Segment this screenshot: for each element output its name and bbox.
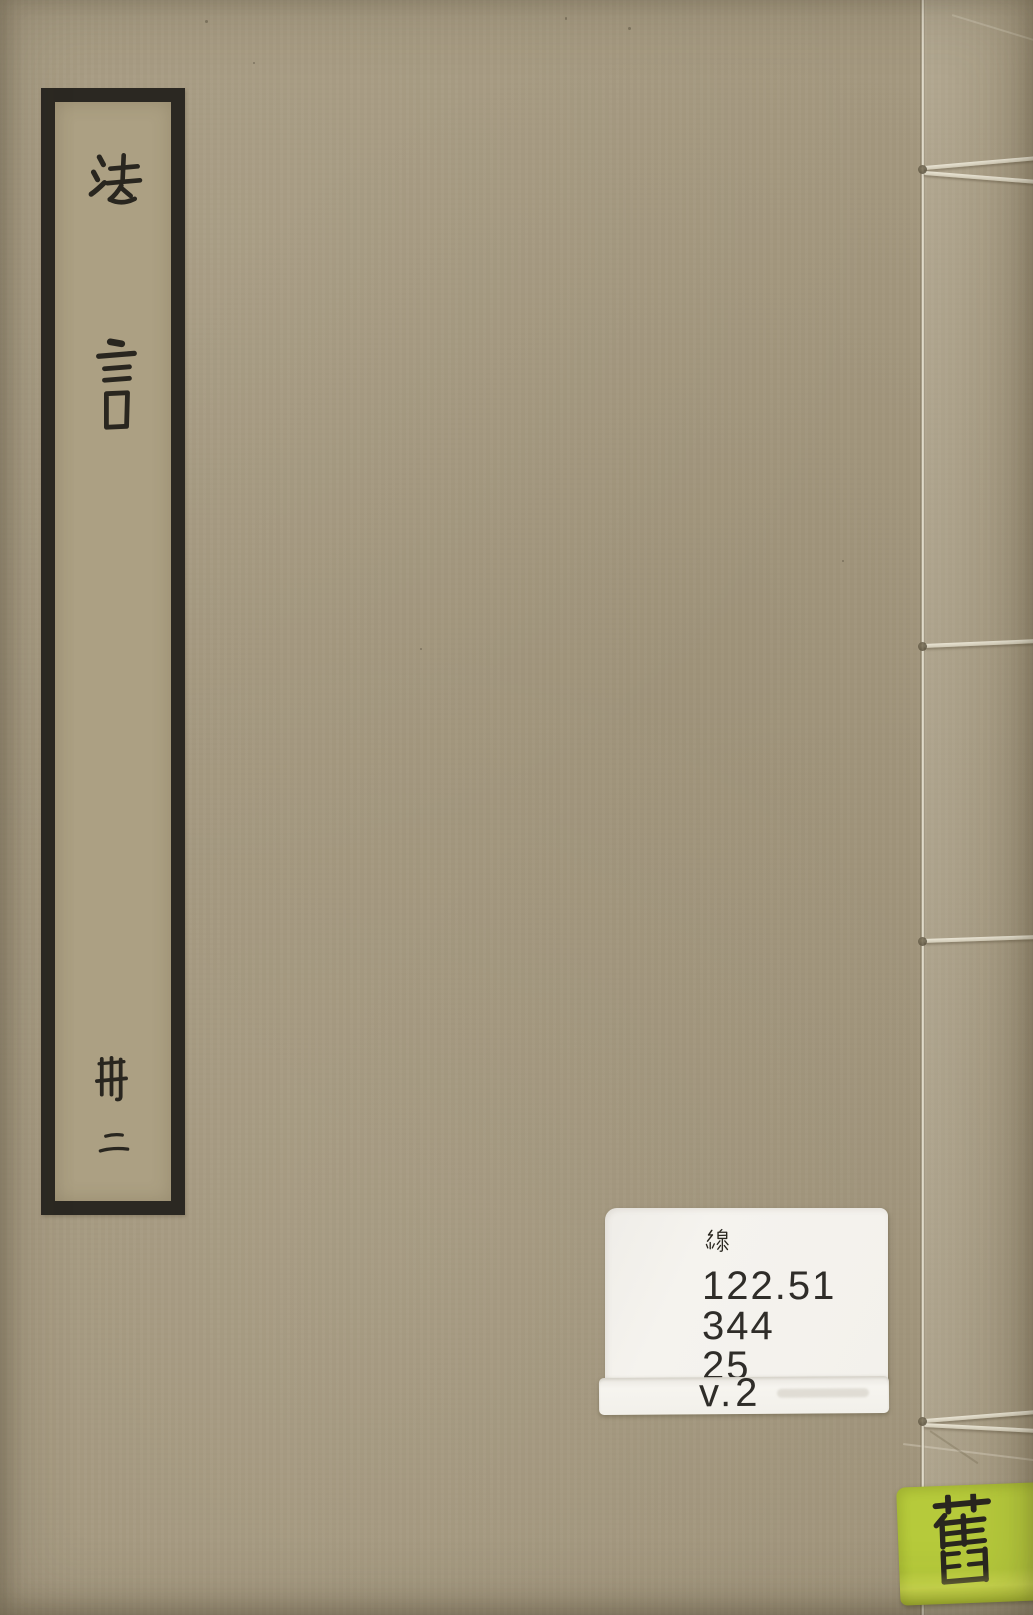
call-number-line-2: 344	[702, 1306, 836, 1346]
volume-strip-text: v.2	[699, 1372, 762, 1414]
title-char-fa: 法	[86, 147, 144, 217]
volume-char-er: 二	[96, 1122, 132, 1164]
volume-strip-label: v.2	[599, 1376, 889, 1415]
call-heading-char-glyph	[704, 1228, 731, 1257]
stitch-hole	[918, 165, 927, 174]
old-condition-char-text: 舊	[896, 1488, 897, 1489]
call-number-line-1: 122.51	[702, 1266, 836, 1306]
binding-thread-vertical	[920, 0, 925, 1615]
old-condition-char-glyph	[922, 1493, 1004, 1594]
stitch-hole	[918, 1417, 927, 1426]
call-heading-char-sen: 線	[704, 1228, 731, 1257]
volume-char-er-glyph	[96, 1122, 132, 1164]
volume-char-ce: 冊	[95, 1053, 128, 1107]
title-char-fa-glyph	[86, 147, 144, 217]
paper-speck	[420, 648, 422, 650]
paper-speck	[205, 20, 208, 23]
old-condition-char-jiu	[922, 1493, 1004, 1594]
call-number-label: 線 122.51	[605, 1208, 888, 1382]
stitch-hole	[918, 937, 927, 946]
old-condition-label: 舊	[896, 1482, 1033, 1606]
binding-margin-area	[925, 0, 1033, 1615]
call-number-text-column: 線 122.51	[702, 1226, 836, 1386]
pencil-smudge	[777, 1388, 869, 1398]
paper-speck	[842, 560, 844, 562]
title-char-yan: 言	[92, 336, 140, 436]
volume-char-ce-glyph	[95, 1053, 128, 1107]
title-label-box: 法 言 冊	[41, 88, 185, 1215]
book-cover: 法 言 冊	[0, 0, 1033, 1615]
paper-speck	[565, 17, 567, 20]
stitch-hole	[918, 642, 927, 651]
title-char-yan-glyph	[92, 336, 140, 436]
paper-speck	[253, 62, 255, 64]
paper-speck	[628, 27, 631, 30]
